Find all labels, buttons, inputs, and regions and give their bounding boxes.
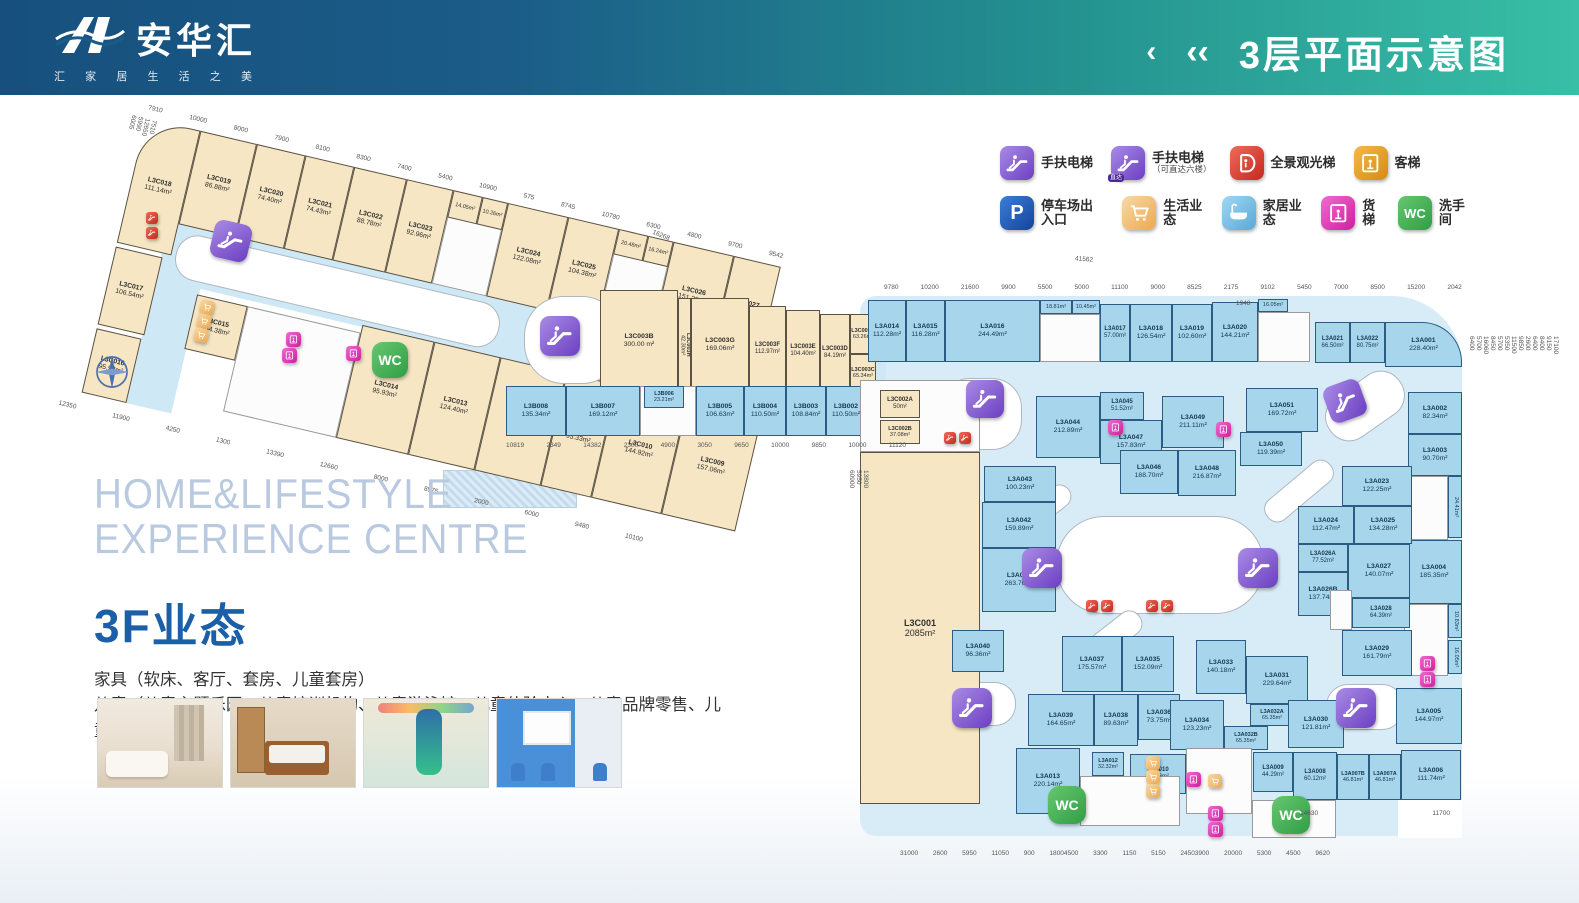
room-L3A042: L3A042159.89m² xyxy=(982,502,1056,548)
freight-elevator-icon xyxy=(1208,822,1223,837)
room-L3C002B: L3C002B37.08m² xyxy=(880,420,920,444)
escalator-icon xyxy=(1238,548,1278,588)
dimension-chain: 1081923491438223004900305096501000098501… xyxy=(506,442,906,449)
freight-elevator-icon xyxy=(1108,420,1123,435)
room-L3A048: L3A048216.87m² xyxy=(1178,450,1236,496)
dimension-chain: 13800595060900 xyxy=(848,470,869,800)
room-L3C003E: L3C003E104.40m² xyxy=(786,310,820,392)
escalator-updown-icon xyxy=(146,212,158,239)
room-small: 16.05m² xyxy=(1258,299,1288,312)
wc-icon: WC xyxy=(1048,786,1086,824)
outline-cut xyxy=(1398,800,1462,838)
room-L3C003G: L3C003G169.06m² xyxy=(691,298,749,392)
room-L3A044: L3A044212.89m² xyxy=(1036,396,1100,458)
escalator-icon xyxy=(1336,688,1376,728)
room-L3A003: L3A00390.70m² xyxy=(1408,434,1462,476)
dimension-chain: 1948 xyxy=(1236,300,1250,307)
room-L3A021: L3A02166.50m² xyxy=(1315,322,1350,363)
room-L3C002A: L3C002A50m² xyxy=(880,390,920,418)
room-L3A017: L3A01757.00m² xyxy=(1100,304,1130,362)
room-L3A007A: L3A007A46.81m² xyxy=(1369,754,1401,800)
escalator-updown-icon xyxy=(1086,600,1113,612)
room-L3B008: L3B008135.34m² xyxy=(506,386,566,436)
room-L3B006: L3B00623.21m² xyxy=(644,386,684,408)
life-business-icon xyxy=(1146,784,1160,798)
room-L3A039: L3A039164.65m² xyxy=(1028,694,1094,746)
room-small xyxy=(1080,776,1180,826)
escalator-icon xyxy=(540,316,580,356)
room-small: 24.41m² xyxy=(1448,476,1462,538)
photo-strip xyxy=(97,698,622,788)
room-L3C003D: L3C003D84.19m² xyxy=(820,314,850,392)
room-L3A006: L3A006111.74m² xyxy=(1401,750,1461,800)
room-small xyxy=(1040,314,1100,362)
escalator-icon xyxy=(952,688,992,728)
room-L3A029: L3A029161.79m² xyxy=(1342,630,1412,676)
dimension-chain: 9780102002160099005500500011100900085252… xyxy=(884,284,1462,291)
room-small xyxy=(1330,590,1352,630)
room-L3A043: L3A043100.23m² xyxy=(984,466,1056,502)
photo-living-room xyxy=(97,698,223,788)
room-L3A038: L3A03889.63m² xyxy=(1094,694,1138,746)
room-L3A050: L3A050119.39m² xyxy=(1240,432,1302,466)
room-L3A020: L3A020144.21m² xyxy=(1212,302,1258,362)
english-heading: HOME&LIFESTYLE EXPERIENCE CENTRE xyxy=(94,472,683,562)
room-L3A024: L3A024112.47m² xyxy=(1298,506,1354,544)
room-L3A018: L3A018126.54m² xyxy=(1130,304,1172,362)
room-L3A004: L3A004185.35m² xyxy=(1406,540,1462,604)
room-L3A033: L3A033140.18m² xyxy=(1196,640,1246,694)
room-L3A040: L3A04096.36m² xyxy=(952,630,1004,672)
room-L3B004: L3B004110.50m² xyxy=(744,386,786,436)
room-L3A046: L3A046188.70m² xyxy=(1120,450,1178,494)
dimension-chain: 1463011700 xyxy=(1300,810,1450,817)
freight-elevator-icon xyxy=(1216,422,1231,437)
room-L3B003: L3B003108.84m² xyxy=(786,386,826,436)
room-L3A035: L3A035152.09m² xyxy=(1122,636,1174,692)
freight-elevator-icon xyxy=(1420,656,1435,671)
room-L3C003B: L3C003B300.00 m² xyxy=(600,290,678,392)
freight-elevator-icon xyxy=(286,332,301,347)
room-L3A002: L3A00282.34m² xyxy=(1408,392,1462,434)
escalator-icon xyxy=(966,380,1004,418)
escalator-icon xyxy=(1022,548,1062,588)
room-L3A034: L3A034123.23m² xyxy=(1170,700,1224,750)
floor-business-heading: 3F业态 xyxy=(94,590,734,656)
escalator-updown-icon xyxy=(944,432,971,444)
freight-elevator-icon xyxy=(282,348,297,363)
compass-icon xyxy=(92,352,132,392)
life-business-icon xyxy=(1146,770,1160,784)
room-L3A027: L3A027140.07m² xyxy=(1348,544,1410,598)
room-L3B007: L3B007169.12m² xyxy=(566,386,640,436)
room-L3A008: L3A00860.12m² xyxy=(1293,752,1337,800)
room-L3A032B: L3A032B65.35m² xyxy=(1224,726,1268,750)
room-small xyxy=(1258,312,1310,362)
room-L3A015: L3A015116.28m² xyxy=(906,300,945,362)
room-small: 16.05m² xyxy=(1448,640,1462,674)
room-L3A045: L3A04551.52m² xyxy=(1100,392,1144,420)
photo-kids-classroom xyxy=(496,698,622,788)
room-L3A007B: L3A007B46.81m² xyxy=(1337,754,1369,800)
dimension-chain: 3100026005950110509001800450033001150515… xyxy=(900,850,1330,857)
freight-elevator-icon xyxy=(1208,806,1223,821)
room-L3A012: L3A01232.32m² xyxy=(1092,752,1124,776)
freight-elevator-icon xyxy=(1420,672,1435,687)
room-L3C003H: L3C003H42.30m² xyxy=(678,298,691,392)
life-business-icon xyxy=(1146,756,1160,770)
wc-icon: WC xyxy=(372,342,408,378)
room-L3A014: L3A014112.28m² xyxy=(868,300,906,362)
room-L3A051: L3A051169.72m² xyxy=(1246,388,1318,432)
room-L3A049: L3A049211.11m² xyxy=(1162,396,1224,448)
room-L3A026A: L3A026A77.52m² xyxy=(1298,544,1348,572)
room-L3A037: L3A037175.57m² xyxy=(1062,636,1122,692)
freight-elevator-icon xyxy=(346,346,361,361)
room-small: 10.83m² xyxy=(1448,604,1462,638)
dimension-chain: 1710091508400640026009850115005350570084… xyxy=(1468,336,1559,836)
room-L3C001: L3C0012085m² xyxy=(860,452,980,804)
escalator-updown-icon xyxy=(1146,600,1173,612)
photo-kids-play-area xyxy=(363,698,489,788)
room-L3C003F: L3C003F112.97m² xyxy=(749,306,786,392)
room-L3A022: L3A02280.75m² xyxy=(1350,322,1385,363)
room-L3A028: L3A02864.39m² xyxy=(1352,598,1410,628)
room-L3A019: L3A019102.60m² xyxy=(1172,304,1212,362)
life-business-icon xyxy=(1208,774,1222,788)
room-L3B005: L3B005106.63m² xyxy=(696,386,744,436)
dimension-chain: 41562 xyxy=(1075,255,1094,264)
room-L3A031: L3A031229.64m² xyxy=(1246,656,1308,704)
room-L3A009: L3A00944.29m² xyxy=(1253,752,1293,792)
freight-elevator-icon xyxy=(1186,772,1201,787)
room-small: 10.45m² xyxy=(1072,300,1100,314)
room-L3A016: L3A016244.49m² xyxy=(945,300,1040,362)
room-L3A023: L3A023122.25m² xyxy=(1342,466,1412,506)
room-small: 18.81m² xyxy=(1040,300,1072,314)
photo-bedroom-suite xyxy=(230,698,356,788)
room-L3A025: L3A025134.28m² xyxy=(1354,506,1412,544)
room-L3A005: L3A005144.97m² xyxy=(1396,688,1462,744)
